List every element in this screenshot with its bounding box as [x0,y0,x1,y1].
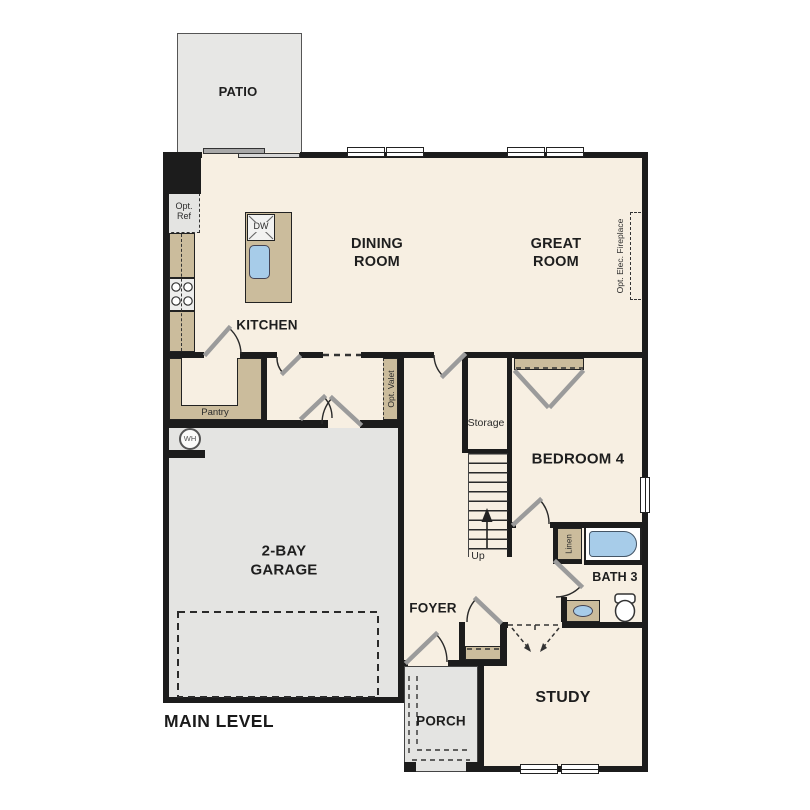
annotation-water-heater: WH [184,435,197,443]
wall-garage-bottom [163,697,404,703]
opening-front-door [408,660,448,666]
wall-study-left [478,660,484,772]
wall-linen-left [553,524,558,564]
room-label-bath3: BATH 3 [592,570,637,586]
wall-vanity-left [561,597,567,624]
vanity-sink [573,605,593,617]
wall-garage-top [163,420,404,428]
opening-study-opt-doors [508,622,562,628]
slider-panel-2 [238,153,300,158]
wall-kitchen-corner [163,152,201,194]
range-cooktop [169,278,195,311]
floor-plan: PATIO DINING ROOM GREAT ROOM KITCHEN BED… [0,0,810,810]
room-label-garage: 2-BAY GARAGE [250,542,317,580]
opening-kitchen [204,352,240,358]
annotation-opt-ref: Opt. Ref [175,202,192,222]
room-label-bedroom4: BEDROOM 4 [532,451,625,470]
bathtub-basin [589,531,637,557]
bedroom4-closet-shelf [514,358,584,370]
window-study-1 [520,764,558,774]
opening-hall [434,352,464,358]
opening-mud-closet [277,352,299,358]
kitchen-counter-lower [169,311,195,352]
opening-garage-entry [328,420,360,428]
counter-edge-dashed [181,234,182,351]
level-label: MAIN LEVEL [164,711,274,732]
wall-storage-left [462,352,468,452]
annotation-opt-valet: Opt. Valet [386,370,396,407]
wall-foyer-closet-right [500,622,507,666]
room-label-study: STUDY [535,688,590,708]
window-dining-1 [347,147,385,157]
wall-linen-bottom [556,560,582,564]
porch-post-left [404,762,416,772]
wall-study-bottom [470,766,648,772]
window-bedroom4 [640,477,650,513]
kitchen-counter-upper [169,233,195,278]
wall-garage-right [398,352,404,703]
annotation-pantry: Pantry [201,408,228,418]
porch-post-right [466,762,478,772]
annotation-storage: Storage [468,418,505,430]
opening-bedroom4 [516,522,550,528]
room-label-patio: PATIO [219,84,258,100]
stairs [468,453,508,557]
wall-pantry-right [262,352,267,420]
annotation-dishwasher: DW [253,222,270,232]
opening-mudroom-dashed [323,352,361,358]
pantry-interior [181,358,238,406]
room-label-porch: PORCH [416,714,466,731]
annotation-opt-fireplace: Opt. Elec. Fireplace [615,219,625,294]
room-label-foyer: FOYER [409,601,457,618]
room-label-dining: DINING ROOM [351,235,403,271]
wall-tub-bottom [584,560,648,565]
wall-foyer-closet-left [459,622,465,666]
wall-right [642,152,648,772]
window-study-2 [561,764,599,774]
annotation-up: Up [471,551,484,563]
annotation-linen: Linen [565,534,574,554]
window-great-2 [546,147,584,157]
window-great-1 [507,147,545,157]
floor-center-band [402,358,648,628]
room-label-great-room: GREAT ROOM [531,235,582,271]
foyer-closet-shelf [465,646,502,660]
room-label-kitchen: KITCHEN [236,318,297,335]
island-sink [249,245,270,279]
wall-garage-nook [169,450,205,458]
window-dining-2 [386,147,424,157]
